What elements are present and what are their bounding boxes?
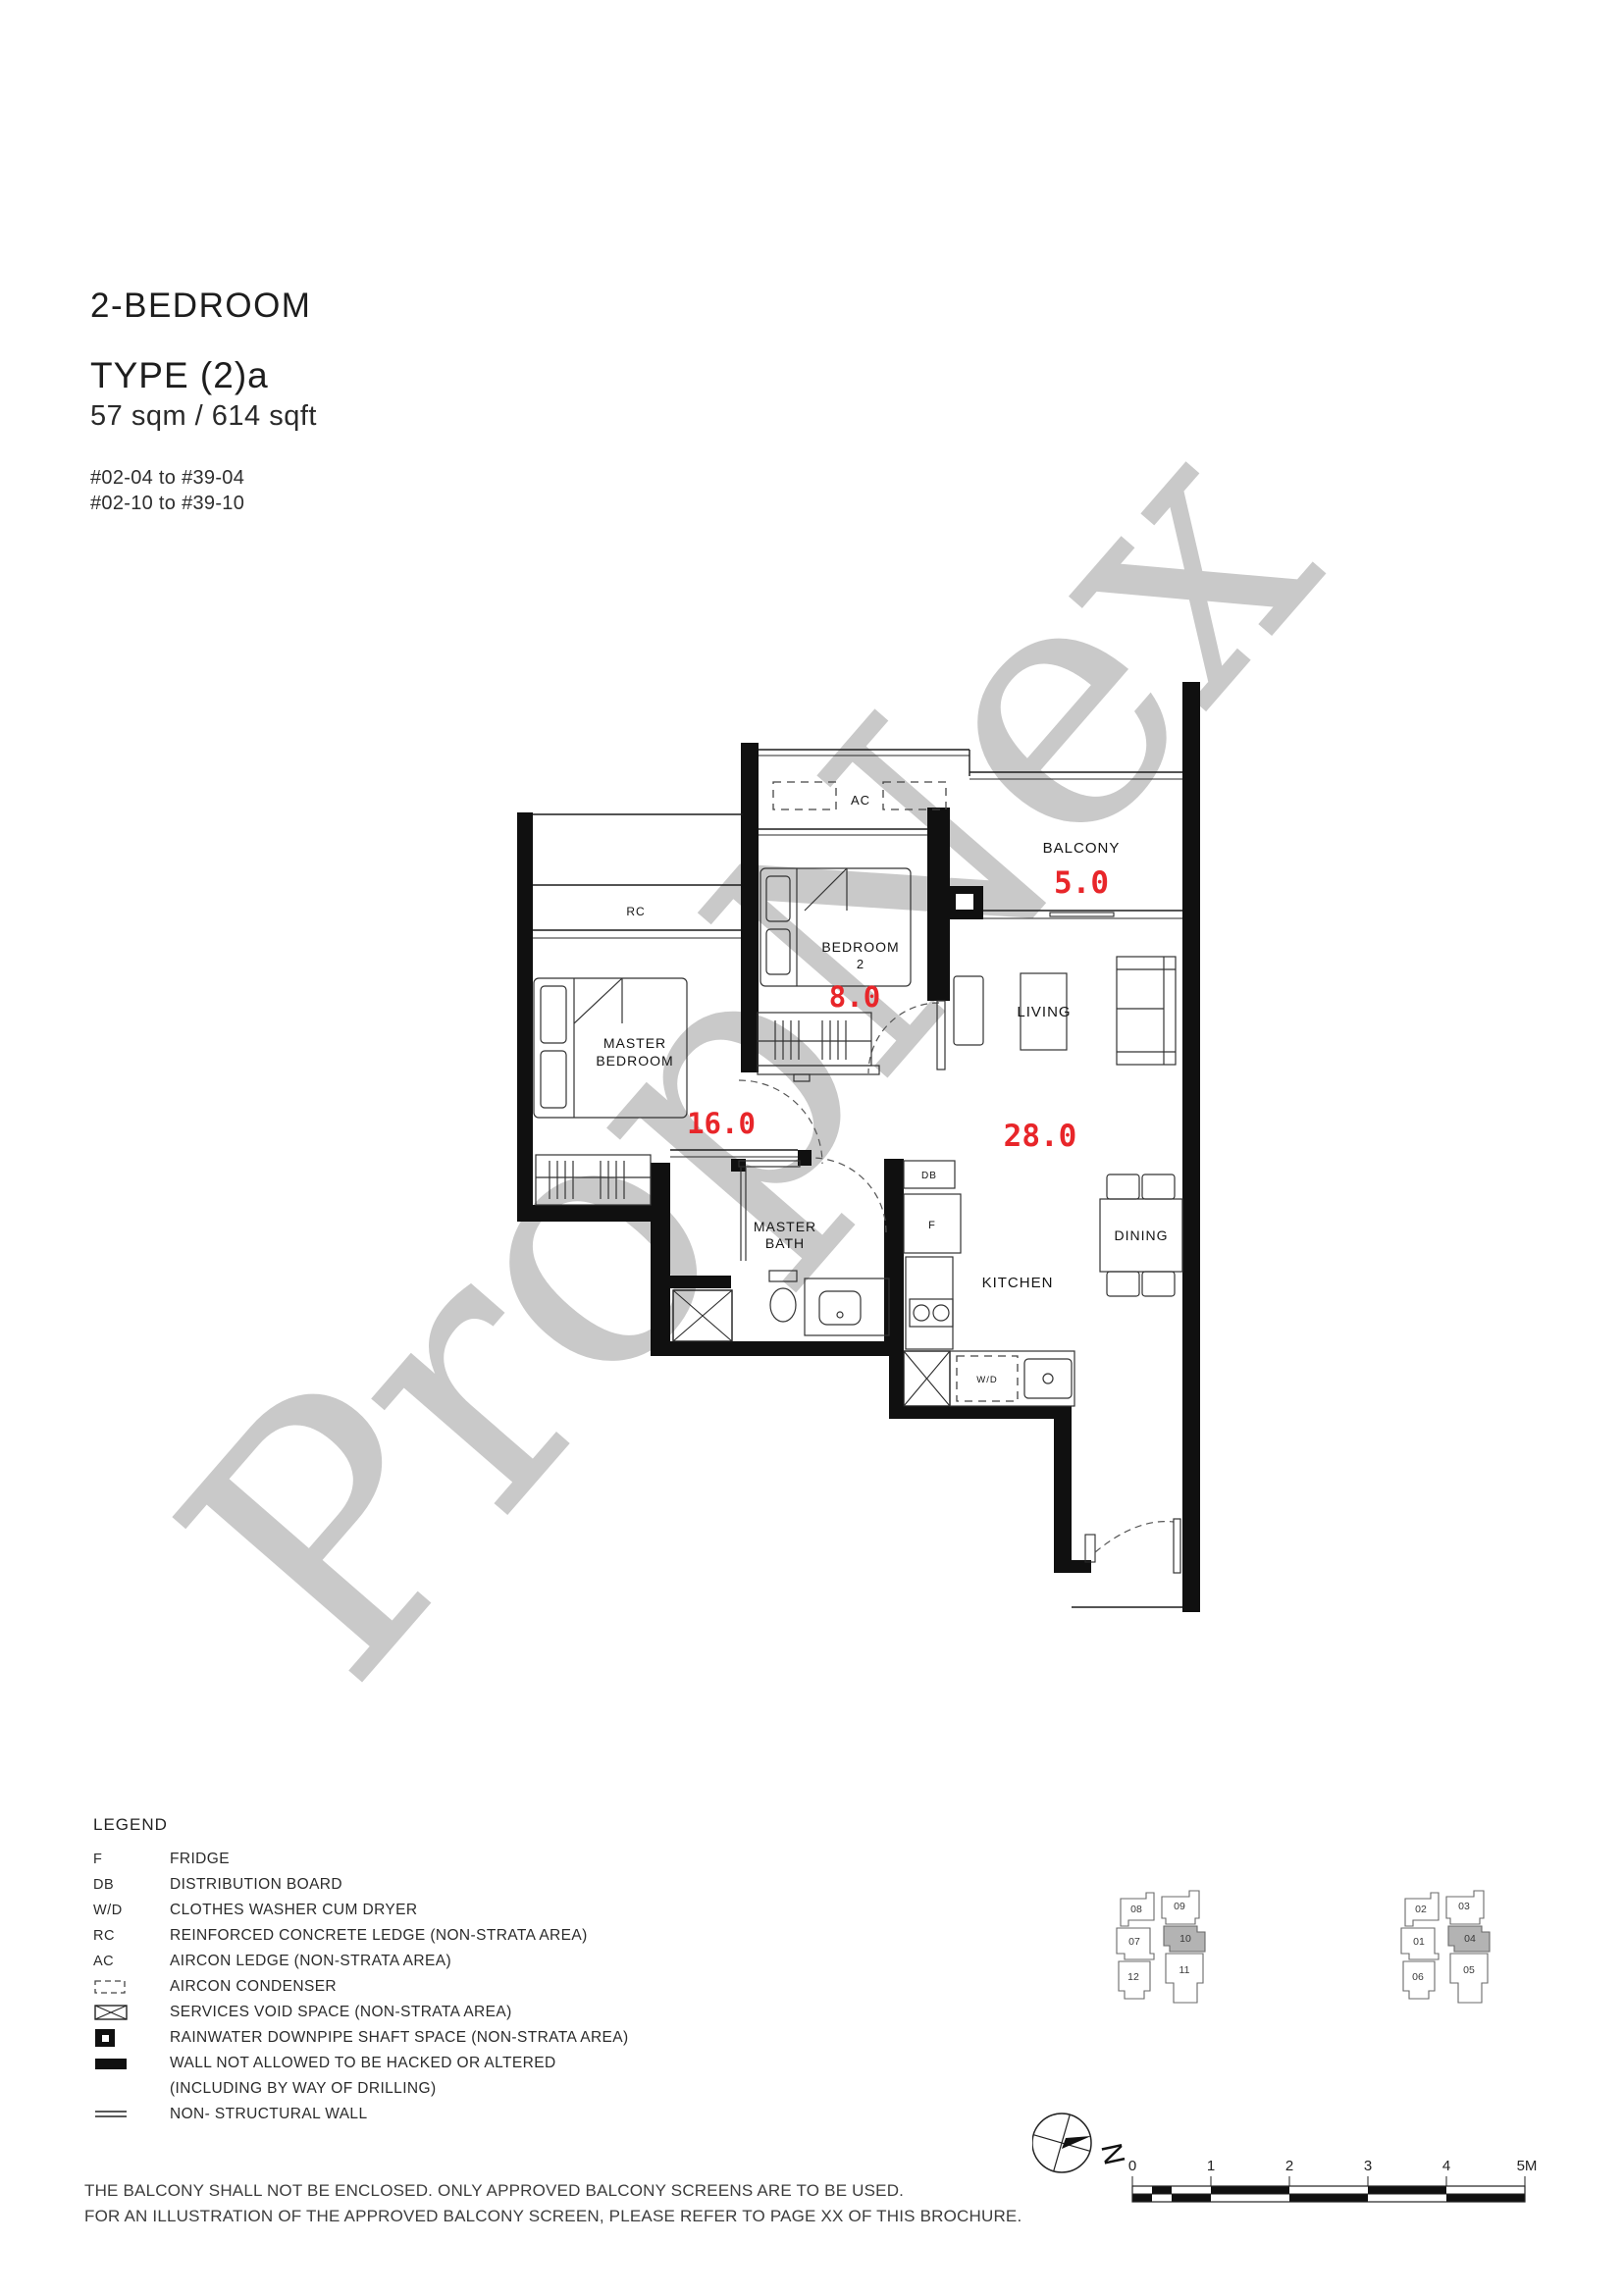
entrance-door-leaf xyxy=(1174,1519,1180,1573)
keyplan-unit: 02 xyxy=(1415,1904,1427,1915)
balcony-area-value: 5.0 xyxy=(1054,865,1109,901)
keyplan-unit: 05 xyxy=(1463,1964,1475,1976)
keyplan-unit: 03 xyxy=(1458,1901,1470,1912)
legend-row: WALL NOT ALLOWED TO BE HACKED OR ALTERED xyxy=(93,2051,629,2076)
brochure-page: 2-BEDROOM TYPE (2)a 57 sqm / 614 sqft #0… xyxy=(0,0,1624,2296)
legend-label: NON- STRUCTURAL WALL xyxy=(170,2106,367,2123)
legend-label: AIRCON CONDENSER xyxy=(170,1978,337,1996)
keyplan-unit-highlighted: 04 xyxy=(1464,1933,1476,1945)
structural-walls xyxy=(517,682,1200,1612)
living-area-value: 28.0 xyxy=(1004,1119,1077,1154)
master-door-leaf xyxy=(739,1161,800,1167)
unit-stack-range: #02-04 to #39-04 #02-10 to #39-10 xyxy=(90,465,244,516)
legend-row: (INCLUDING BY WAY OF DRILLING) xyxy=(93,2076,629,2102)
ac-label: AC xyxy=(851,793,870,808)
legend-label: DISTRIBUTION BOARD xyxy=(170,1876,342,1894)
legend-label: SERVICES VOID SPACE (NON-STRATA AREA) xyxy=(170,2004,512,2021)
bedroom2-bed xyxy=(760,868,911,986)
keyplan-unit: 01 xyxy=(1413,1936,1425,1948)
legend: LEGEND F FRIDGE DB DISTRIBUTION BOARD W/… xyxy=(93,1815,629,2127)
page-title: 2-BEDROOM xyxy=(90,287,311,326)
rainwater-downpipe-shaft xyxy=(948,886,983,919)
keyplan-block-right: 02 03 01 04 06 05 xyxy=(1391,1889,1509,2036)
legend-label: (INCLUDING BY WAY OF DRILLING) xyxy=(170,2080,437,2098)
legend-key: F xyxy=(93,1852,170,1867)
wd-label: W/D xyxy=(976,1375,997,1385)
keyplan-unit: 12 xyxy=(1127,1971,1139,1983)
master-bedroom-label: MASTER xyxy=(603,1035,666,1051)
legend-label: CLOTHES WASHER CUM DRYER xyxy=(170,1902,417,1919)
legend-row: RC REINFORCED CONCRETE LEDGE (NON-STRATA… xyxy=(93,1923,629,1949)
bedroom2-wardrobe xyxy=(758,1013,879,1081)
kitchen-label: KITCHEN xyxy=(982,1275,1054,1291)
aircon-condenser-icon xyxy=(93,1979,170,1995)
scale-bar: 0 1 2 3 4 5M xyxy=(1117,2155,1568,2223)
legend-row: DB DISTRIBUTION BOARD xyxy=(93,1872,629,1898)
legend-key: RC xyxy=(93,1928,170,1944)
keyplan-unit: 06 xyxy=(1412,1971,1424,1983)
scale-tick-label: 5M xyxy=(1517,2158,1538,2174)
legend-label: FRIDGE xyxy=(170,1851,230,1868)
dining-label: DINING xyxy=(1115,1227,1169,1243)
keyplan-unit: 11 xyxy=(1179,1964,1190,1976)
services-void-icon xyxy=(93,2004,170,2021)
legend-row: W/D CLOTHES WASHER CUM DRYER xyxy=(93,1898,629,1923)
keyplan-unit: 08 xyxy=(1130,1904,1142,1915)
footnote-line: THE BALCONY SHALL NOT BE ENCLOSED. ONLY … xyxy=(84,2178,1022,2204)
legend-label: REINFORCED CONCRETE LEDGE (NON-STRATA AR… xyxy=(170,1927,588,1945)
db-label: DB xyxy=(921,1171,937,1181)
bath-fixtures xyxy=(741,1168,889,1335)
floor-plan: AC BALCONY BEDROOM 2 RC MASTER BEDROOM L… xyxy=(481,648,1266,1678)
master-bedroom-label2: BEDROOM xyxy=(596,1053,673,1069)
bedroom2-area-value: 8.0 xyxy=(829,980,880,1014)
legend-label: AIRCON LEDGE (NON-STRATA AREA) xyxy=(170,1953,451,1970)
stack-line: #02-10 to #39-10 xyxy=(90,491,244,516)
keyplan-unit-highlighted: 10 xyxy=(1179,1933,1191,1945)
fridge-label: F xyxy=(928,1220,936,1231)
legend-row: RAINWATER DOWNPIPE SHAFT SPACE (NON-STRA… xyxy=(93,2025,629,2051)
master-area-value: 16.0 xyxy=(687,1107,756,1140)
legend-key: W/D xyxy=(93,1903,170,1918)
legend-row: AC AIRCON LEDGE (NON-STRATA AREA) xyxy=(93,1949,629,1974)
rainwater-downpipe-icon xyxy=(93,2028,170,2048)
scale-tick-label: 3 xyxy=(1364,2158,1372,2174)
bedroom2-number: 2 xyxy=(857,957,864,971)
master-wardrobe xyxy=(536,1155,651,1205)
scale-tick-label: 1 xyxy=(1207,2158,1215,2174)
bedroom2-door-leaf xyxy=(937,1001,945,1070)
keyplan-block-left: 08 09 07 10 12 11 xyxy=(1107,1889,1225,2036)
stack-line: #02-04 to #39-04 xyxy=(90,465,244,491)
structural-wall-icon xyxy=(93,2057,170,2070)
footnote-line: FOR AN ILLUSTRATION OF THE APPROVED BALC… xyxy=(84,2204,1022,2229)
footnotes: THE BALCONY SHALL NOT BE ENCLOSED. ONLY … xyxy=(84,2178,1022,2229)
scale-tick-label: 0 xyxy=(1128,2158,1136,2174)
legend-row: AIRCON CONDENSER xyxy=(93,1974,629,2000)
living-label: LIVING xyxy=(1017,1004,1071,1020)
legend-title: LEGEND xyxy=(93,1815,629,1835)
keyplan-unit: 07 xyxy=(1128,1936,1140,1948)
unit-type-title: TYPE (2)a xyxy=(90,355,269,396)
master-bath-label2: BATH xyxy=(765,1235,805,1251)
legend-key: AC xyxy=(93,1954,170,1969)
rc-label: RC xyxy=(626,905,645,918)
legend-key: DB xyxy=(93,1877,170,1893)
bedroom2-label: BEDROOM xyxy=(821,939,899,955)
legend-row: NON- STRUCTURAL WALL xyxy=(93,2102,629,2127)
master-bath-label: MASTER xyxy=(754,1219,816,1234)
keyplan-unit: 09 xyxy=(1174,1901,1185,1912)
balcony-label: BALCONY xyxy=(1043,840,1121,857)
door-swings xyxy=(739,1003,1174,1552)
scale-tick-label: 4 xyxy=(1442,2158,1450,2174)
unit-area: 57 sqm / 614 sqft xyxy=(90,400,317,433)
non-structural-wall-icon xyxy=(93,2109,170,2120)
legend-row: SERVICES VOID SPACE (NON-STRATA AREA) xyxy=(93,2000,629,2025)
scale-tick-label: 2 xyxy=(1285,2158,1293,2174)
legend-label: RAINWATER DOWNPIPE SHAFT SPACE (NON-STRA… xyxy=(170,2029,629,2047)
legend-label: WALL NOT ALLOWED TO BE HACKED OR ALTERED xyxy=(170,2055,556,2072)
legend-row: F FRIDGE xyxy=(93,1847,629,1872)
